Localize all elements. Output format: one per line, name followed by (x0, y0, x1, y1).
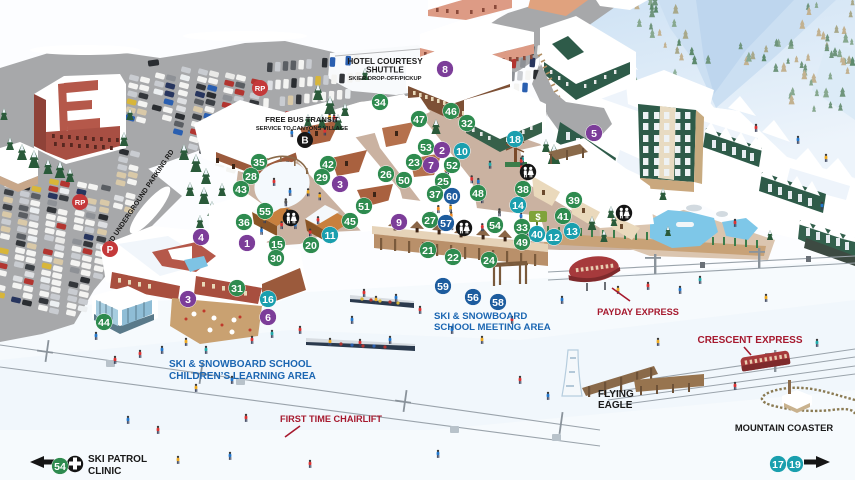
svg-text:35: 35 (253, 157, 265, 169)
svg-text:SKI & SNOWBOARD: SKI & SNOWBOARD (434, 311, 527, 322)
svg-text:CHILDREN’S LEARNING AREA: CHILDREN’S LEARNING AREA (169, 371, 316, 382)
svg-text:25: 25 (437, 176, 449, 188)
svg-text:24: 24 (483, 255, 495, 267)
svg-text:18: 18 (509, 134, 521, 146)
svg-text:14: 14 (512, 200, 524, 212)
svg-text:SCHOOL MEETING AREA: SCHOOL MEETING AREA (434, 322, 551, 333)
svg-text:60: 60 (446, 191, 458, 203)
svg-text:RP: RP (255, 84, 266, 93)
svg-text:28: 28 (245, 171, 257, 183)
svg-text:10: 10 (456, 146, 468, 158)
svg-text:8: 8 (442, 64, 448, 76)
svg-text:B: B (301, 136, 308, 147)
svg-text:9: 9 (396, 217, 402, 229)
svg-text:SHUTTLE: SHUTTLE (366, 66, 404, 75)
svg-text:48: 48 (472, 188, 484, 200)
svg-text:52: 52 (446, 160, 458, 172)
svg-text:41: 41 (557, 211, 569, 223)
svg-text:7: 7 (428, 160, 434, 172)
svg-text:54: 54 (489, 220, 501, 232)
svg-text:11: 11 (324, 230, 335, 242)
svg-text:49: 49 (516, 237, 528, 249)
svg-text:59: 59 (437, 281, 449, 293)
svg-text:CRESCENT EXPRESS: CRESCENT EXPRESS (697, 335, 802, 346)
svg-text:FIRST TIME CHAIRLIFT: FIRST TIME CHAIRLIFT (280, 414, 382, 424)
svg-text:23: 23 (408, 157, 420, 169)
svg-text:SKIER DROP-OFF/PICKUP: SKIER DROP-OFF/PICKUP (348, 76, 421, 82)
svg-text:29: 29 (316, 172, 328, 184)
svg-text:43: 43 (235, 184, 247, 196)
svg-text:39: 39 (568, 195, 580, 207)
svg-text:38: 38 (517, 184, 529, 196)
svg-text:FLYING: FLYING (598, 389, 634, 400)
svg-text:EAGLE: EAGLE (598, 400, 633, 411)
svg-text:54: 54 (54, 461, 66, 473)
svg-text:40: 40 (531, 229, 543, 241)
svg-text:46: 46 (445, 106, 457, 118)
svg-text:3: 3 (185, 294, 191, 306)
svg-text:47: 47 (413, 114, 425, 126)
svg-text:20: 20 (305, 240, 317, 252)
svg-text:22: 22 (447, 252, 459, 264)
svg-text:34: 34 (374, 97, 386, 109)
svg-text:SKI PATROL: SKI PATROL (88, 454, 147, 465)
svg-text:13: 13 (566, 226, 578, 238)
svg-text:56: 56 (467, 292, 479, 304)
svg-text:51: 51 (358, 201, 370, 213)
svg-text:FREE BUS TRANSIT: FREE BUS TRANSIT (265, 115, 339, 124)
svg-text:6: 6 (265, 312, 271, 324)
svg-text:32: 32 (461, 118, 473, 130)
svg-text:16: 16 (262, 294, 274, 306)
svg-text:RP: RP (75, 198, 86, 207)
svg-text:19: 19 (789, 459, 801, 471)
svg-text:30: 30 (270, 253, 282, 265)
svg-text:P: P (107, 245, 114, 256)
svg-text:58: 58 (492, 297, 504, 309)
svg-text:27: 27 (424, 215, 436, 227)
svg-text:SKI & SNOWBOARD SCHOOL: SKI & SNOWBOARD SCHOOL (169, 359, 312, 370)
svg-text:21: 21 (422, 245, 434, 257)
svg-text:50: 50 (398, 175, 410, 187)
svg-text:26: 26 (380, 169, 392, 181)
svg-text:37: 37 (429, 189, 441, 201)
svg-text:$: $ (535, 212, 541, 223)
svg-text:44: 44 (98, 317, 110, 329)
svg-text:12: 12 (548, 232, 560, 244)
svg-text:PAYDAY EXPRESS: PAYDAY EXPRESS (597, 307, 679, 317)
svg-text:57: 57 (440, 218, 452, 230)
svg-text:5: 5 (591, 128, 597, 140)
svg-text:3: 3 (337, 179, 343, 191)
svg-text:17: 17 (772, 459, 784, 471)
svg-text:4: 4 (198, 232, 204, 244)
svg-text:1: 1 (244, 238, 250, 250)
svg-text:45: 45 (344, 216, 356, 228)
svg-text:31: 31 (231, 283, 243, 295)
svg-text:55: 55 (259, 206, 271, 218)
svg-text:15: 15 (271, 239, 283, 251)
svg-text:MOUNTAIN COASTER: MOUNTAIN COASTER (735, 422, 833, 433)
svg-text:CLINIC: CLINIC (88, 466, 121, 477)
svg-text:SERVICE TO CANYONS VILLAGE: SERVICE TO CANYONS VILLAGE (256, 126, 348, 132)
svg-text:36: 36 (238, 217, 250, 229)
svg-text:33: 33 (516, 222, 528, 234)
svg-text:2: 2 (439, 145, 445, 157)
svg-text:53: 53 (420, 142, 432, 154)
